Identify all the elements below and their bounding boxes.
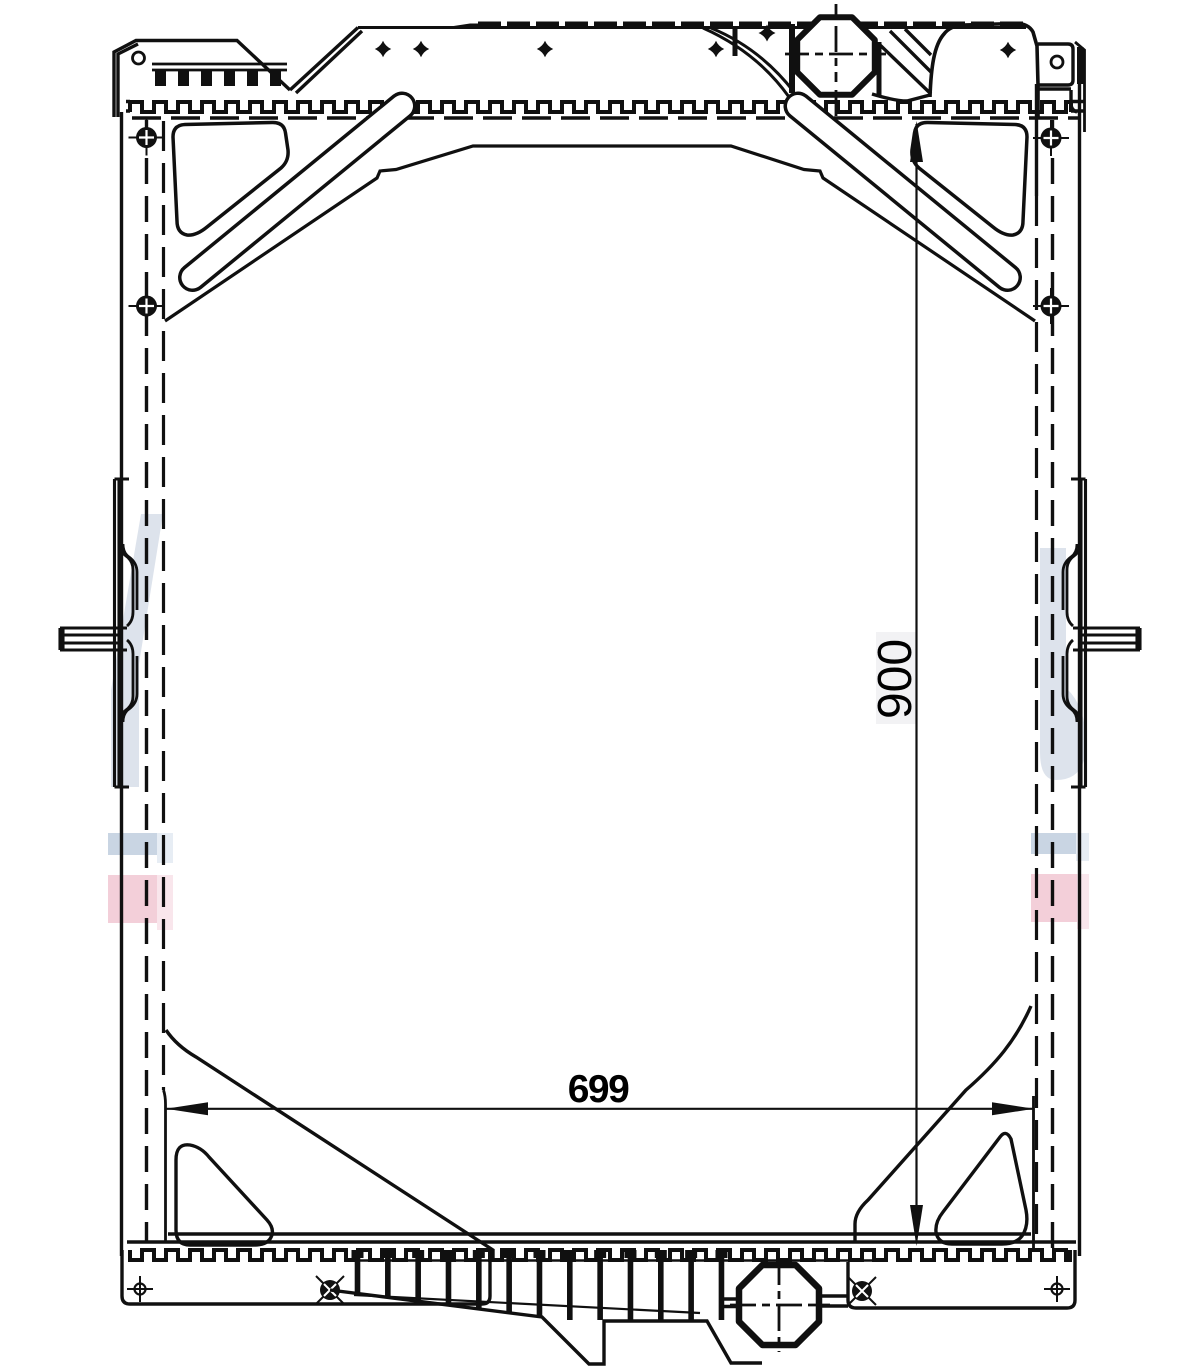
- svg-text:699: 699: [568, 1068, 629, 1111]
- svg-text:900: 900: [869, 639, 922, 719]
